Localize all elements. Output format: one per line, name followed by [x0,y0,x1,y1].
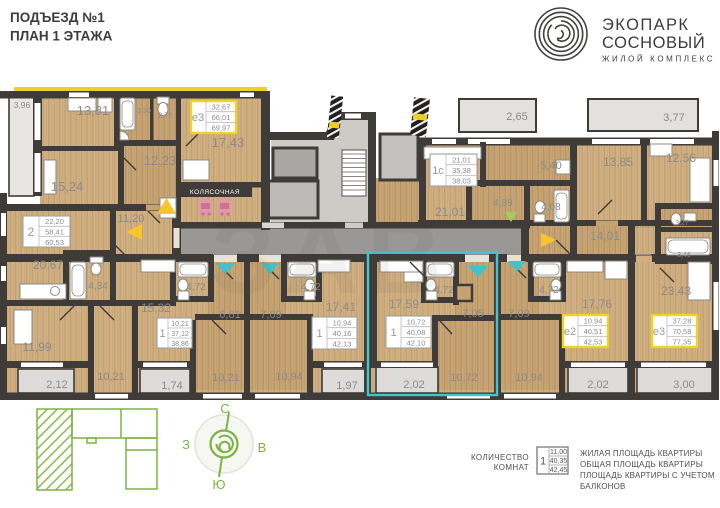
svg-text:е3: е3 [653,326,665,338]
svg-text:21,01: 21,01 [452,156,471,165]
svg-text:2,02: 2,02 [587,379,608,391]
svg-text:4,34: 4,34 [88,281,108,292]
svg-text:40,08: 40,08 [407,328,426,337]
svg-text:10,94: 10,94 [333,319,352,328]
svg-text:3,77: 3,77 [663,112,684,124]
svg-text:10,21: 10,21 [171,321,189,328]
svg-text:13,81: 13,81 [77,103,110,118]
svg-text:17,43: 17,43 [212,135,245,150]
svg-text:ПЛОЩАДЬ КВАРТИРЫ С УЧЕТОМ: ПЛОЩАДЬ КВАРТИРЫ С УЧЕТОМ [580,471,715,480]
svg-text:10,21: 10,21 [97,371,125,383]
svg-text:е3: е3 [192,112,204,124]
svg-text:С: С [220,401,229,416]
svg-text:ОБЩАЯ ПЛОЩАДЬ КВАРТИРЫ: ОБЩАЯ ПЛОЩАДЬ КВАРТИРЫ [580,460,703,469]
svg-text:42,13: 42,13 [333,340,352,349]
svg-text:38,03: 38,03 [452,177,471,186]
svg-text:4,72: 4,72 [539,285,559,296]
svg-text:10,94: 10,94 [584,317,603,326]
svg-text:3,30: 3,30 [137,108,151,115]
svg-text:20,67: 20,67 [33,258,63,272]
svg-text:1,74: 1,74 [161,380,182,392]
svg-text:11,99: 11,99 [22,340,51,354]
svg-text:10,21: 10,21 [212,372,240,384]
svg-text:ЗАВ: ЗАВ [210,200,449,316]
svg-text:10,72: 10,72 [450,372,478,384]
svg-text:2,65: 2,65 [506,111,527,123]
svg-text:13,85: 13,85 [603,155,633,169]
svg-text:КОЛИЧЕСТВО: КОЛИЧЕСТВО [471,453,529,462]
svg-text:Ю: Ю [212,477,225,492]
svg-text:58,41: 58,41 [45,227,64,236]
svg-text:15,32: 15,32 [141,301,171,315]
svg-text:1: 1 [316,328,322,340]
svg-text:7,05: 7,05 [462,308,483,320]
svg-text:2,72: 2,72 [158,113,172,120]
svg-text:4,08: 4,08 [541,202,561,213]
svg-text:2,12: 2,12 [46,379,67,391]
svg-text:ЭКОПАРК: ЭКОПАРК [602,16,689,34]
svg-text:3,27: 3,27 [675,220,689,227]
svg-text:10,94: 10,94 [275,371,303,383]
svg-text:14,01: 14,01 [590,229,620,243]
svg-text:22,20: 22,20 [45,217,64,226]
svg-text:77,35: 77,35 [673,338,692,347]
svg-text:1: 1 [390,327,396,339]
svg-text:12,23: 12,23 [144,153,177,168]
svg-text:38,86: 38,86 [171,341,189,348]
svg-text:32,67: 32,67 [212,103,231,112]
svg-text:ЖИЛОЙ КОМПЛЕКС: ЖИЛОЙ КОМПЛЕКС [602,55,715,64]
svg-text:5,40: 5,40 [540,160,561,172]
svg-text:35,38: 35,38 [452,166,471,175]
svg-text:1,97: 1,97 [336,380,357,392]
svg-text:4,89: 4,89 [493,198,513,209]
svg-text:ПОДЪЕЗД №1: ПОДЪЕЗД №1 [10,10,105,25]
svg-text:3,00: 3,00 [673,379,694,391]
svg-text:КОЛЯСОЧНАЯ: КОЛЯСОЧНАЯ [190,189,240,196]
svg-text:42,53: 42,53 [584,338,603,347]
svg-text:В: В [258,440,267,455]
svg-text:37,12: 37,12 [171,331,189,338]
svg-text:10,94: 10,94 [515,372,543,384]
svg-text:40,16: 40,16 [333,329,352,338]
svg-text:БАЛКОНОВ: БАЛКОНОВ [580,482,626,491]
svg-text:42,10: 42,10 [407,339,426,348]
svg-text:15,24: 15,24 [51,179,84,194]
svg-text:2: 2 [28,225,35,239]
svg-text:1: 1 [540,456,546,468]
svg-text:70,58: 70,58 [673,327,692,336]
svg-text:11,00: 11,00 [550,449,567,456]
svg-text:3,46: 3,46 [677,252,691,259]
svg-text:1: 1 [159,328,165,340]
svg-text:10,72: 10,72 [407,318,426,327]
svg-text:ПЛАН 1 ЭТАЖА: ПЛАН 1 ЭТАЖА [10,29,113,44]
svg-text:11,20: 11,20 [118,213,145,225]
svg-text:е2: е2 [564,326,576,338]
svg-text:60,53: 60,53 [45,238,64,247]
svg-text:1с: 1с [432,165,444,177]
svg-text:ЖИЛАЯ ПЛОЩАДЬ КВАРТИРЫ: ЖИЛАЯ ПЛОЩАДЬ КВАРТИРЫ [580,449,702,458]
svg-text:12,56: 12,56 [666,151,696,165]
svg-text:СОСНОВЫЙ: СОСНОВЫЙ [602,33,705,52]
svg-text:4,72: 4,72 [186,282,206,293]
svg-text:69,97: 69,97 [212,124,231,133]
svg-text:З: З [182,437,190,452]
svg-text:2,02: 2,02 [403,379,424,391]
svg-text:42,45: 42,45 [550,467,568,474]
svg-text:17,76: 17,76 [582,297,612,311]
svg-text:40,35: 40,35 [550,458,568,465]
svg-text:37,28: 37,28 [673,317,692,326]
svg-text:3,96: 3,96 [14,100,31,110]
svg-text:7,09: 7,09 [508,308,529,320]
svg-text:23,43: 23,43 [661,284,691,298]
svg-text:40,51: 40,51 [584,327,603,336]
svg-text:КОМНАТ: КОМНАТ [494,463,529,472]
svg-text:66,01: 66,01 [212,113,231,122]
